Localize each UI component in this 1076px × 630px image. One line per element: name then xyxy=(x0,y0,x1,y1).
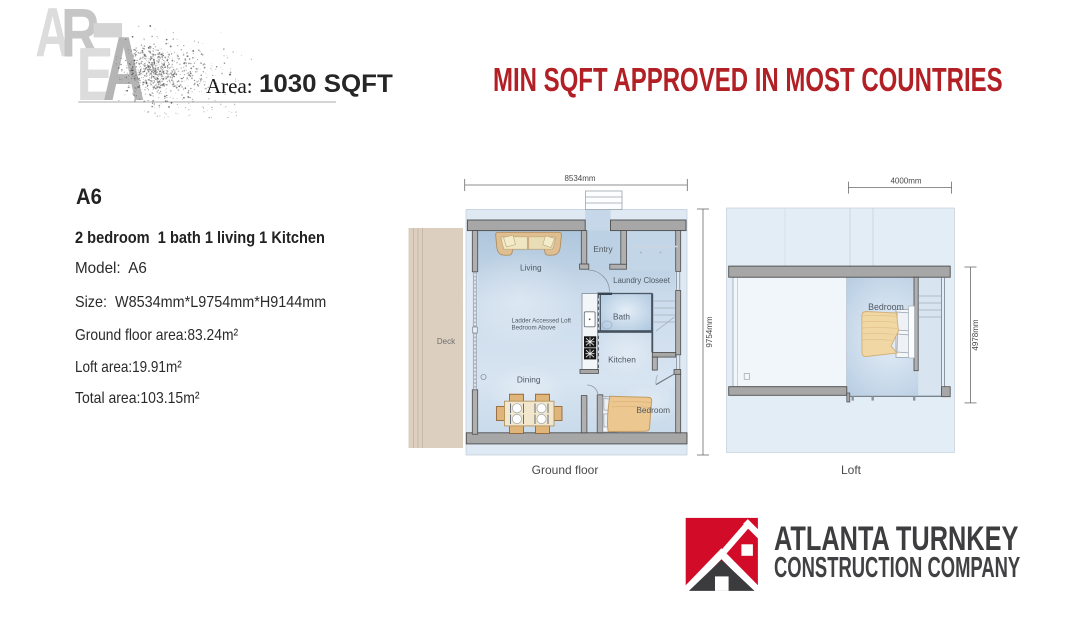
svg-text:9754mm: 9754mm xyxy=(705,316,714,347)
svg-text:Dining: Dining xyxy=(517,375,541,385)
svg-text:Bedroom: Bedroom xyxy=(868,302,904,312)
svg-text:4978mm: 4978mm xyxy=(971,319,980,350)
svg-text:4000mm: 4000mm xyxy=(890,177,921,186)
svg-text:Ground floor: Ground floor xyxy=(532,463,599,477)
svg-text:8534mm: 8534mm xyxy=(564,174,595,183)
svg-text:Bedroom: Bedroom xyxy=(636,405,670,415)
svg-text:Laundry Closeet: Laundry Closeet xyxy=(613,276,671,285)
svg-text:Kitchen: Kitchen xyxy=(608,355,636,365)
svg-text:Entry: Entry xyxy=(593,244,613,254)
svg-text:Loft: Loft xyxy=(841,463,862,477)
svg-text:Deck: Deck xyxy=(437,337,456,346)
svg-text:Bedroom Above: Bedroom Above xyxy=(512,325,557,332)
svg-text:Ladder Accessed Loft: Ladder Accessed Loft xyxy=(512,318,572,325)
svg-text:Living: Living xyxy=(520,263,542,273)
svg-text:Bath: Bath xyxy=(613,312,630,322)
